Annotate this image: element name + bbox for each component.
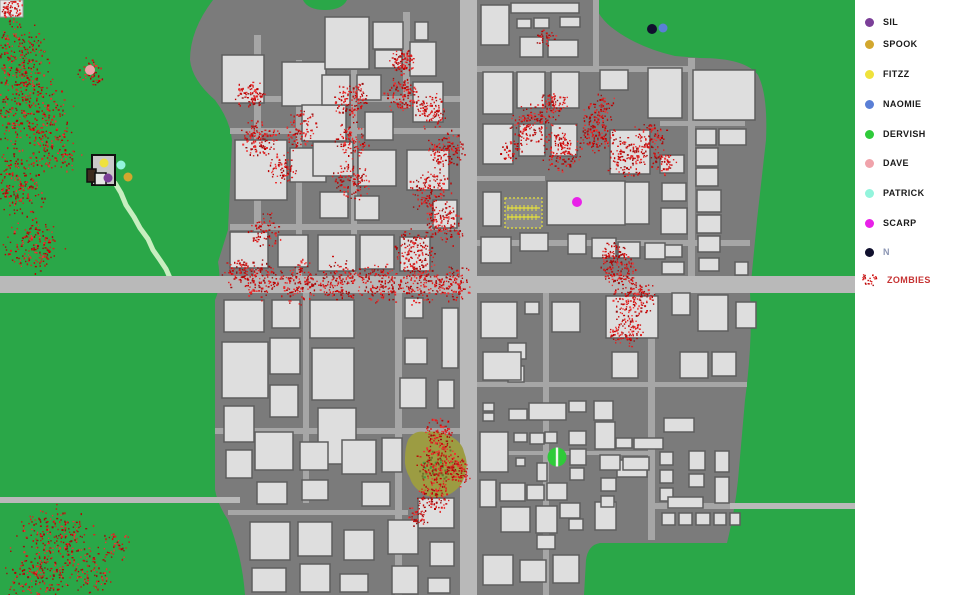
building (520, 233, 548, 251)
building (520, 37, 543, 57)
player-color-swatch (865, 100, 874, 109)
street (228, 510, 408, 515)
building (483, 555, 513, 585)
building (400, 378, 426, 408)
building (298, 522, 332, 556)
building (570, 468, 584, 480)
building (680, 352, 708, 378)
building (517, 72, 545, 108)
building (255, 432, 293, 470)
building (645, 243, 665, 259)
building (516, 458, 525, 466)
building (257, 482, 287, 504)
building (529, 403, 566, 420)
building (224, 300, 264, 332)
building (270, 385, 298, 417)
building (428, 578, 450, 593)
building (226, 450, 252, 478)
player-name-label: ZOMBIES (887, 275, 931, 286)
building (222, 342, 268, 398)
legend-panel: SILSPOOKFITZZNAOMIEDERVISHDAVEPATRICKSCA… (855, 0, 969, 595)
player-marker-naomie[interactable] (659, 24, 668, 33)
building (712, 352, 736, 376)
building (715, 451, 729, 472)
building (601, 478, 616, 491)
building (623, 457, 649, 470)
building (300, 564, 330, 592)
building (388, 520, 418, 554)
building (698, 236, 720, 252)
building (392, 566, 418, 594)
building (481, 5, 509, 45)
legend-item-sil: SIL (865, 16, 898, 28)
building (302, 105, 346, 141)
legend-item-dave: DAVE (865, 157, 909, 169)
building (553, 555, 579, 583)
street (477, 176, 545, 181)
building (514, 433, 527, 442)
building (601, 496, 614, 507)
building (547, 181, 625, 225)
building (634, 438, 663, 449)
building (661, 208, 687, 234)
player-marker-sil[interactable] (104, 174, 113, 183)
building (594, 401, 613, 420)
building (527, 485, 544, 500)
building (662, 262, 684, 274)
building (545, 432, 557, 443)
building (689, 474, 704, 487)
main-road (460, 0, 477, 595)
building (483, 352, 521, 380)
building (278, 235, 308, 267)
building (480, 480, 496, 507)
building (483, 413, 494, 421)
building (679, 513, 692, 525)
player-name-label: PATRICK (883, 188, 924, 199)
player-marker-dave[interactable] (85, 65, 95, 75)
building (250, 522, 290, 560)
building (530, 433, 544, 444)
building (568, 234, 586, 254)
building (560, 503, 580, 518)
building (715, 477, 729, 503)
building (483, 124, 513, 164)
building (525, 302, 539, 314)
building (360, 235, 394, 269)
player-name-label: N (883, 247, 890, 258)
building (719, 129, 746, 145)
building (340, 574, 368, 592)
player-color-swatch (865, 189, 874, 198)
building (696, 148, 718, 166)
building (537, 463, 547, 481)
building (714, 513, 726, 525)
building (672, 293, 690, 315)
building (442, 308, 458, 368)
building (696, 129, 716, 145)
player-marker-fitzz[interactable] (100, 159, 109, 168)
building (547, 483, 567, 500)
player-name-label: DERVISH (883, 129, 926, 140)
building (362, 482, 390, 506)
building (662, 513, 675, 525)
player-color-swatch (865, 70, 874, 79)
building (382, 438, 402, 472)
building (302, 480, 328, 500)
building (480, 432, 508, 472)
player-name-label: SIL (883, 17, 898, 28)
building (511, 3, 579, 13)
building (696, 513, 710, 525)
building (501, 507, 530, 532)
legend-item-naomie: NAOMIE (865, 98, 921, 110)
street (303, 293, 309, 503)
legend-item-fitzz: FITZZ (865, 68, 910, 80)
building (595, 422, 615, 449)
building (517, 19, 531, 28)
player-marker-dervish[interactable] (548, 448, 567, 467)
building (660, 470, 673, 483)
player-name-label: NAOMIE (883, 99, 921, 110)
building (699, 258, 719, 271)
building (552, 302, 580, 332)
building (483, 403, 494, 411)
building (230, 232, 268, 268)
zombies-speckle-icon (862, 274, 878, 287)
building (325, 17, 369, 69)
building (660, 452, 673, 465)
player-color-swatch (865, 40, 874, 49)
building (551, 124, 577, 156)
building (697, 215, 721, 233)
player-color-swatch (865, 219, 874, 228)
building (415, 22, 428, 40)
city-map[interactable] (0, 0, 855, 595)
building (537, 535, 555, 549)
building (616, 438, 632, 448)
player-name-label: DAVE (883, 158, 909, 169)
building (310, 300, 354, 338)
legend-item-spook: SPOOK (865, 38, 918, 50)
building (483, 192, 501, 226)
player-name-label: SPOOK (883, 39, 918, 50)
legend-item-zombies: ZOMBIES (865, 274, 931, 286)
building (355, 196, 379, 220)
building (481, 237, 511, 263)
player-name-label: FITZZ (883, 69, 910, 80)
building (569, 431, 586, 445)
building (660, 155, 684, 173)
building (483, 72, 513, 114)
player-color-swatch (865, 130, 874, 139)
building (322, 75, 350, 105)
building (312, 348, 354, 400)
building (318, 235, 356, 271)
building (520, 560, 546, 582)
building (600, 70, 628, 90)
player-color-swatch (865, 18, 874, 27)
player-marker-spook[interactable] (124, 173, 133, 182)
building (689, 451, 705, 470)
building (270, 338, 300, 374)
building (373, 22, 403, 49)
building (438, 380, 454, 408)
building (693, 70, 755, 120)
building (300, 442, 328, 470)
building (342, 440, 376, 474)
building (592, 238, 616, 258)
legend-item-scarp: SCARP (865, 217, 917, 229)
building (282, 62, 326, 106)
building (344, 530, 374, 560)
building (534, 18, 549, 28)
street (230, 224, 460, 230)
legend-item-patrick: PATRICK (865, 187, 924, 199)
building (509, 409, 527, 420)
game-map-screen: SILSPOOKFITZZNAOMIEDERVISHDAVEPATRICKSCA… (0, 0, 969, 595)
player-color-swatch (865, 159, 874, 168)
street (660, 121, 745, 126)
railyard-hatched-building (505, 198, 542, 228)
legend-item-dervish: DERVISH (865, 128, 926, 140)
building (664, 418, 694, 432)
building (730, 513, 740, 525)
map-viewport[interactable] (0, 0, 855, 595)
building (320, 192, 348, 218)
building (570, 449, 586, 465)
building (365, 112, 393, 140)
building (405, 338, 427, 364)
player-marker-n[interactable] (647, 24, 657, 34)
main-road (0, 276, 855, 293)
building (600, 455, 620, 470)
building (224, 406, 254, 442)
building (662, 183, 686, 201)
building (569, 519, 583, 530)
main-road (0, 497, 240, 503)
building (697, 190, 721, 212)
building (235, 140, 287, 200)
building (500, 483, 525, 501)
building (548, 40, 578, 57)
player-color-swatch (865, 248, 874, 257)
building (736, 302, 756, 328)
building (735, 262, 748, 275)
building (569, 401, 586, 412)
player-marker-scarp[interactable] (572, 197, 582, 207)
player-marker-patrick[interactable] (117, 161, 126, 170)
building (536, 506, 557, 533)
building (648, 68, 682, 118)
building (560, 17, 580, 27)
building (668, 497, 703, 508)
building (481, 302, 517, 338)
street (593, 0, 599, 66)
building (696, 168, 718, 186)
building (698, 295, 728, 331)
building (272, 300, 300, 328)
building (252, 568, 286, 592)
main-road (730, 503, 855, 509)
building (612, 352, 638, 378)
building (430, 542, 454, 566)
legend-item-n: N (865, 246, 890, 258)
player-name-label: SCARP (883, 218, 917, 229)
